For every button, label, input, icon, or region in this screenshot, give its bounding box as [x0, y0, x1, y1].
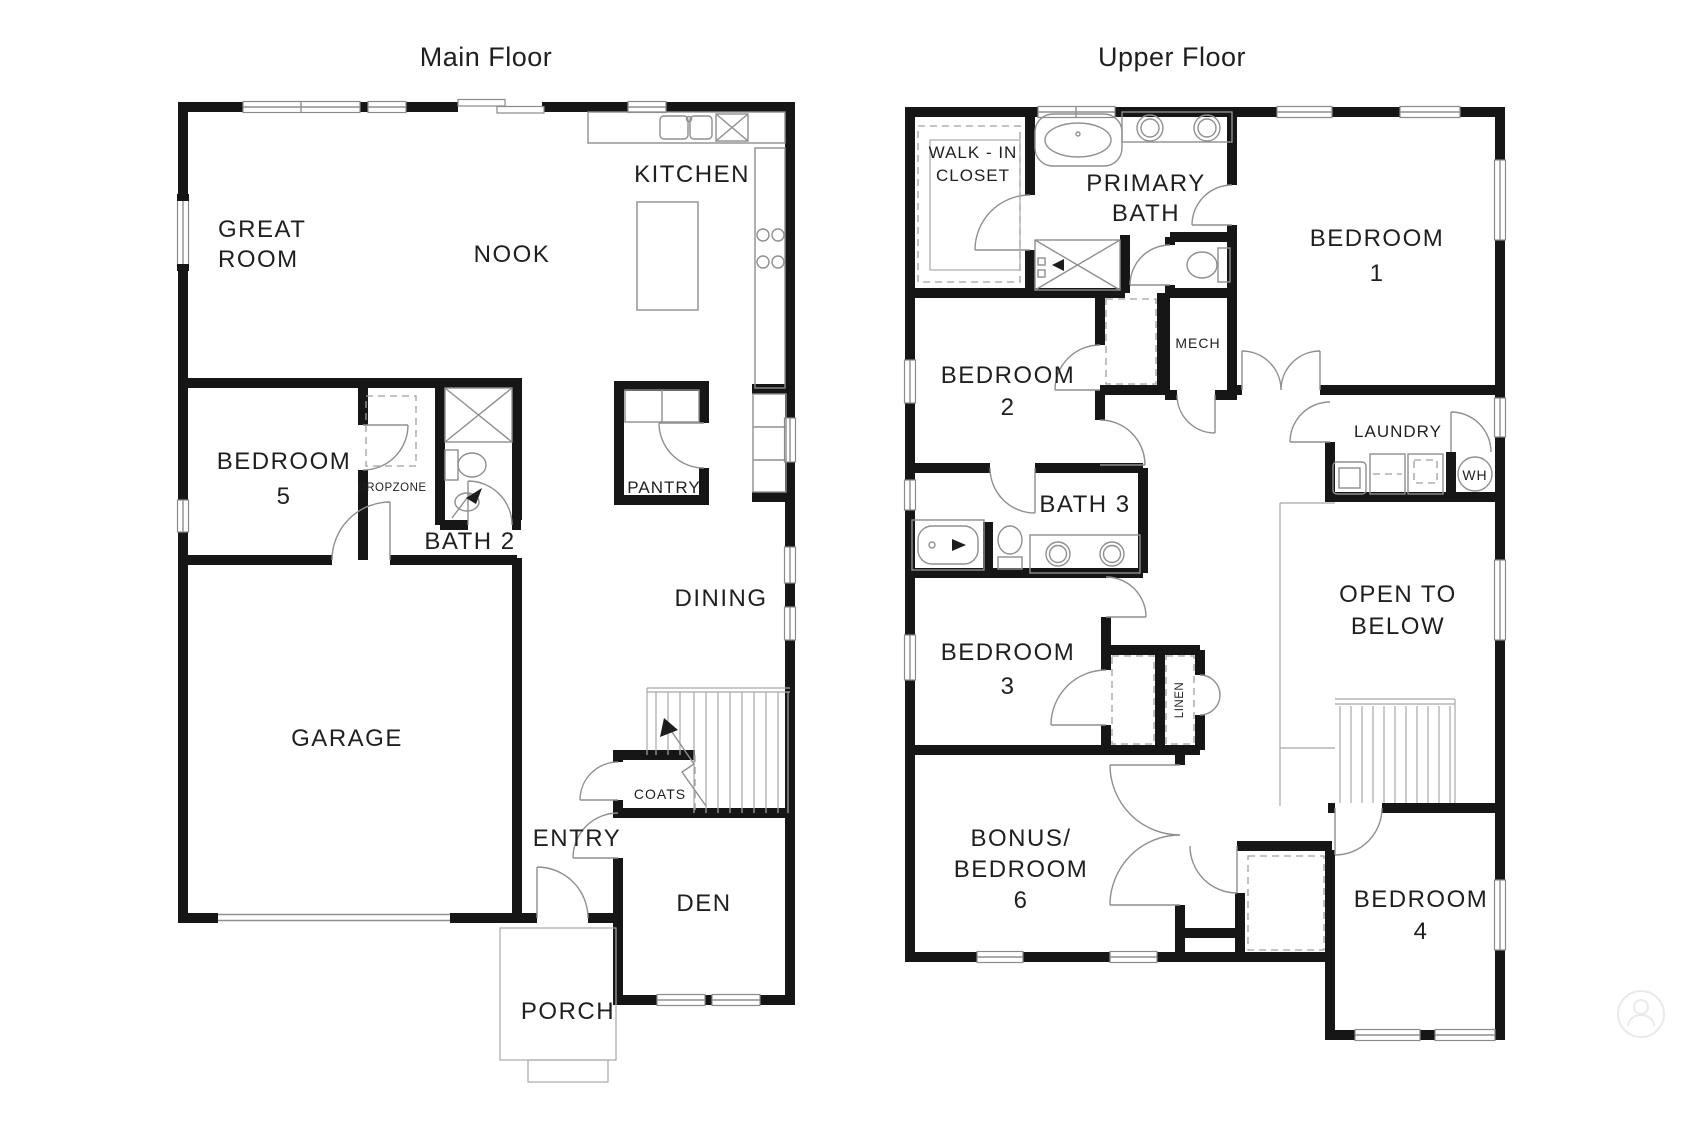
room-label-bonus-3: 6: [1014, 887, 1029, 914]
dropzone-closet: [366, 396, 416, 466]
laundry-sink: [1333, 462, 1366, 494]
room-label-bedroom2-2: 2: [1001, 394, 1016, 421]
main-floor-title: Main Floor: [420, 42, 553, 72]
cooktop-burners: [757, 229, 769, 241]
room-label-bedroom5-2: 5: [277, 483, 292, 510]
hall-closet-door: [1190, 846, 1237, 893]
upper-floor-plan: Upper Floor WALK - IN CLOSET PRIMARY BAT…: [905, 42, 1506, 1041]
room-label-bedroom2: BEDROOM: [941, 362, 1076, 389]
bedroom3-door: [1106, 577, 1146, 617]
room-label-bath2: BATH 2: [424, 528, 515, 555]
linen-doors: [1200, 675, 1220, 715]
room-label-den: DEN: [676, 890, 731, 917]
room-label-porch: PORCH: [521, 998, 615, 1025]
room-label-walk-in: WALK - IN: [929, 143, 1018, 162]
room-label-open-to-below-2: BELOW: [1351, 613, 1445, 640]
room-label-bedroom1-2: 1: [1370, 260, 1385, 287]
room-label-bath3: BATH 3: [1039, 491, 1130, 518]
room-label-bedroom3: BEDROOM: [941, 639, 1076, 666]
bedroom4-door: [1335, 808, 1382, 855]
walk-in-closet-door: [975, 195, 1030, 250]
coats-door: [580, 762, 618, 800]
kitchen-island: [637, 202, 698, 310]
room-label-dropzone: DROPZONE: [357, 482, 426, 494]
open-to-below-rail: [1280, 503, 1335, 806]
bath3-tub: [912, 520, 984, 570]
built-in-cabinet: [753, 394, 786, 492]
floorplan-page: Main Floor GREAT ROOM KITCHEN NOOK BEDRO…: [0, 0, 1697, 1131]
room-label-bonus: BONUS/: [970, 825, 1071, 852]
bedroom2-closet: [1106, 299, 1156, 384]
toilet: [445, 450, 458, 480]
bath3-door: [990, 468, 1035, 513]
room-label-kitchen: KITCHEN: [634, 161, 750, 188]
wh-closet-door: [1451, 412, 1491, 452]
kitchen-sink: [660, 116, 688, 139]
sliding-door: [458, 100, 505, 107]
floorplan-canvas: Main Floor GREAT ROOM KITCHEN NOOK BEDRO…: [0, 0, 1697, 1131]
watermark-logo-icon: [1618, 991, 1664, 1037]
upper-floor-title: Upper Floor: [1098, 42, 1246, 72]
room-label-open-to-below: OPEN TO: [1339, 581, 1457, 608]
pantry-door: [659, 423, 704, 468]
toilet-room-door: [1130, 245, 1170, 285]
bath3-toilet: [998, 526, 1022, 554]
bedroom1-double-doors: [1242, 351, 1320, 390]
room-label-bedroom4-2: 4: [1414, 918, 1429, 945]
room-label-wh: WH: [1462, 467, 1487, 483]
front-door: [537, 867, 588, 918]
hall-closet: [1248, 856, 1324, 950]
bedroom5-door: [363, 425, 408, 470]
dryer: [1408, 454, 1443, 494]
room-label-primary-bath-2: BATH: [1112, 200, 1180, 227]
bedroom3-closet-door: [1051, 670, 1106, 725]
room-label-primary-bath: PRIMARY: [1086, 170, 1205, 197]
room-label-mech: MECH: [1175, 335, 1220, 351]
room-label-great-room: GREAT: [218, 216, 306, 243]
room-label-bedroom3-2: 3: [1001, 673, 1016, 700]
bedroom2-door: [1100, 420, 1145, 465]
laundry-door: [1290, 402, 1330, 442]
room-label-bedroom4: BEDROOM: [1354, 886, 1489, 913]
main-floor-plan: Main Floor GREAT ROOM KITCHEN NOOK BEDRO…: [177, 42, 796, 1082]
room-label-great-room-2: ROOM: [218, 246, 299, 273]
room-label-dining: DINING: [675, 585, 768, 612]
room-label-bedroom5: BEDROOM: [217, 448, 352, 475]
room-label-coats: COATS: [634, 786, 686, 802]
mech-door: [1177, 395, 1215, 433]
bonus-double-doors: [1110, 765, 1180, 905]
room-label-bedroom1: BEDROOM: [1310, 225, 1445, 252]
room-label-linen: LINEN: [1174, 682, 1186, 718]
room-label-bonus-2: BEDROOM: [954, 856, 1089, 883]
room-label-pantry: PANTRY: [627, 478, 700, 497]
room-label-laundry: LAUNDRY: [1354, 422, 1442, 441]
room-label-nook: NOOK: [474, 241, 551, 268]
upper-stairs: [1335, 699, 1455, 803]
bedroom3-closet: [1112, 656, 1154, 744]
room-label-entry: ENTRY: [533, 825, 621, 852]
room-label-walk-in-2: CLOSET: [936, 166, 1010, 185]
room-label-garage: GARAGE: [291, 725, 403, 752]
primary-tub: [1035, 114, 1122, 166]
